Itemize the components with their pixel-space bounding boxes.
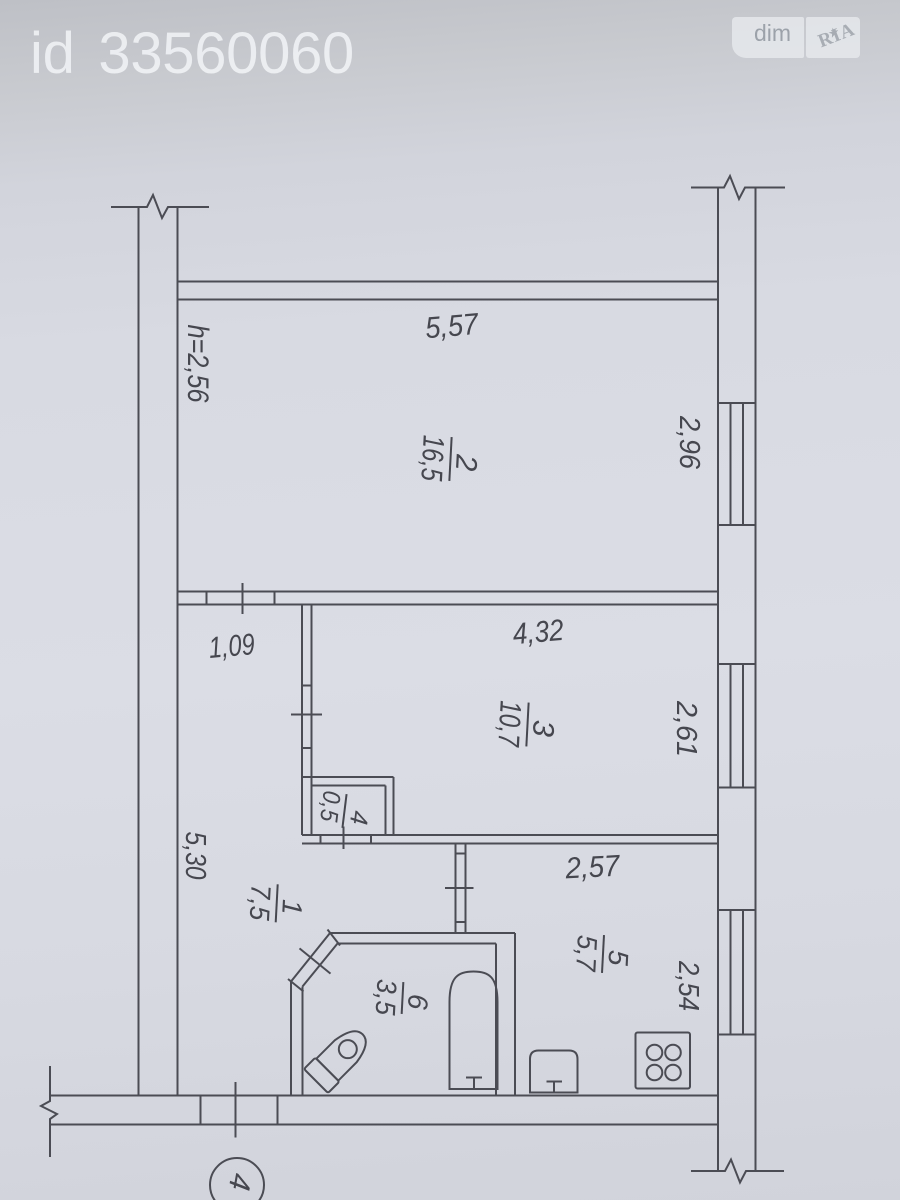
svg-text:16,5: 16,5 [414,434,449,482]
svg-text:5,7: 5,7 [570,934,603,973]
svg-text:4,32: 4,32 [511,614,565,651]
svg-text:2,57: 2,57 [564,850,622,886]
svg-text:5,30: 5,30 [179,832,211,880]
svg-text:2,54: 2,54 [672,960,704,1011]
svg-text:3,5: 3,5 [370,978,403,1016]
svg-text:6: 6 [402,993,434,1011]
svg-text:4: 4 [222,1171,257,1193]
svg-text:2,96: 2,96 [673,415,705,470]
svg-text:4: 4 [344,809,373,826]
svg-text:5,57: 5,57 [424,308,481,346]
svg-text:0,5: 0,5 [314,789,346,823]
svg-text:5: 5 [602,949,634,967]
svg-text:3: 3 [526,719,560,738]
svg-text:7,5: 7,5 [244,884,277,922]
svg-text:h=2,56: h=2,56 [181,325,214,403]
svg-text:2,61: 2,61 [670,700,702,757]
svg-text:1,09: 1,09 [207,628,256,665]
svg-text:1: 1 [276,899,308,916]
svg-text:2: 2 [449,453,483,473]
svg-text:10,7: 10,7 [491,700,526,749]
